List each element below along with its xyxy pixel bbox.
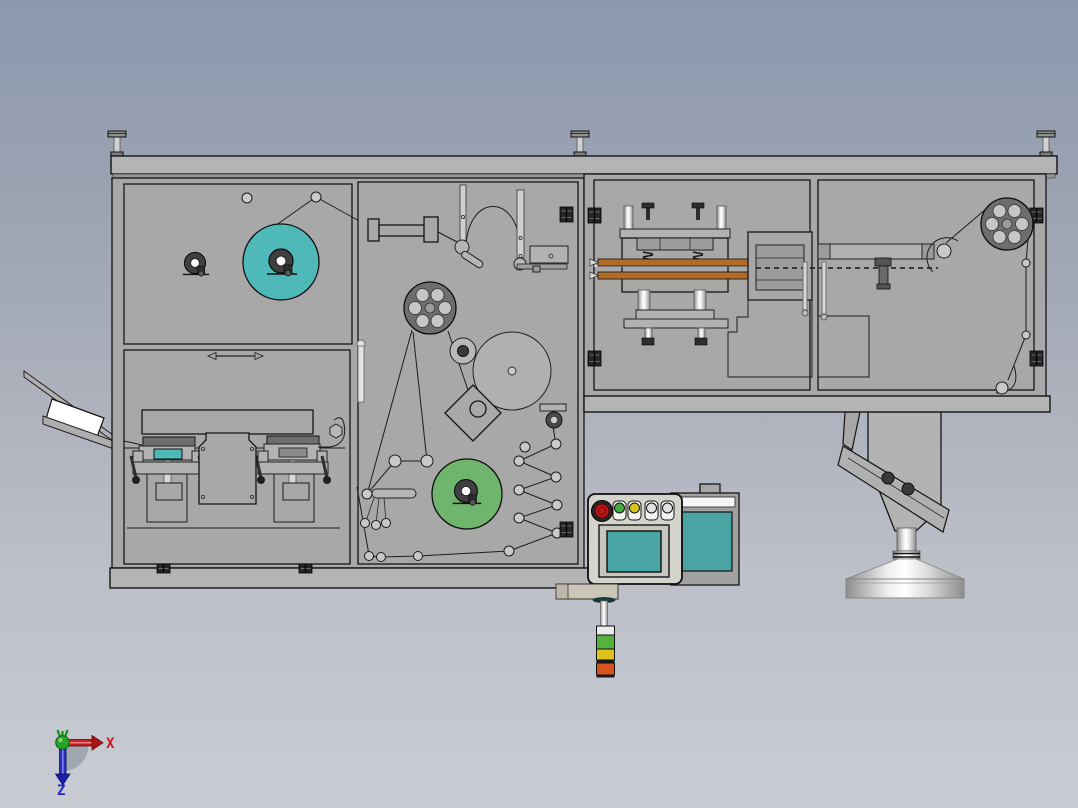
door-hinge — [1030, 351, 1043, 366]
lifting-eyebolt-middle — [571, 131, 589, 156]
bracket-bolt-1 — [882, 472, 894, 484]
seal-lower-plate — [636, 310, 714, 319]
seal-guard-box — [748, 232, 812, 300]
leg-arm — [843, 412, 860, 450]
forming-station-panel — [124, 350, 350, 564]
web-guide-roller — [1022, 331, 1030, 339]
cad-viewport[interactable]: X Z — [0, 0, 1078, 808]
sensor-shelf — [530, 246, 568, 263]
foot-cone — [846, 559, 964, 579]
green-button[interactable] — [615, 503, 625, 513]
emergency-stop-button[interactable] — [592, 501, 613, 522]
film-unwind-panel — [124, 184, 370, 344]
white-button-2[interactable] — [663, 503, 673, 513]
tower-light-green — [597, 635, 615, 649]
web-guide-roller — [996, 382, 1008, 394]
station-insert — [154, 449, 182, 459]
foot-pad — [846, 579, 964, 598]
top-rail — [111, 156, 1057, 174]
machine-frame — [108, 131, 1057, 178]
tower-light-cap — [597, 626, 615, 635]
web-guide-roller — [311, 192, 321, 202]
tension-hex-nut — [330, 424, 342, 438]
back-screen[interactable] — [681, 512, 732, 571]
foot-stem — [897, 528, 916, 551]
outfeed-guide-roller — [937, 244, 951, 258]
axis-z-label: Z — [57, 783, 65, 799]
axis-x-label: X — [106, 736, 115, 752]
exit-chute — [24, 371, 114, 449]
station-bracket — [133, 462, 203, 474]
section-bottom-rail — [584, 396, 1050, 412]
outfeed-bracket — [875, 258, 891, 266]
door-hinge — [560, 522, 573, 537]
clamp-knob — [257, 476, 265, 484]
bottom-rail — [110, 568, 590, 588]
panel-mount-bracket — [556, 584, 618, 603]
station-bracket — [258, 462, 328, 474]
hmi-screen[interactable] — [607, 531, 661, 572]
web-guide-roller — [1022, 259, 1030, 267]
white-button-1[interactable] — [647, 503, 657, 513]
triad-origin-ball — [56, 736, 70, 750]
tower-light-pole — [601, 601, 608, 626]
lifting-eyebolt-right — [1037, 131, 1055, 156]
machine-leg-assembly — [838, 412, 964, 598]
index-wheel-forming — [404, 282, 456, 334]
machine-drawing: X Z — [0, 0, 1078, 808]
web-guide-roller — [242, 193, 252, 203]
foot-rings — [893, 551, 920, 559]
heater-bar-upper — [598, 259, 750, 266]
lifting-eyebolt-left — [108, 131, 126, 156]
station-top-beam — [142, 410, 313, 434]
yellow-button[interactable] — [630, 503, 640, 513]
dancer-rod — [460, 185, 466, 243]
tower-light — [597, 626, 615, 678]
door-hinge — [560, 207, 573, 222]
orientation-triad: X Z — [56, 730, 116, 799]
bracket-bolt-2 — [902, 483, 914, 495]
tower-light-red — [597, 663, 615, 675]
clamp-knob — [132, 476, 140, 484]
tower-light-yellow — [597, 649, 615, 660]
clamp-knob — [323, 476, 331, 484]
door-hinge — [588, 208, 601, 223]
web-transport-panel — [357, 182, 578, 564]
center-guard-plate — [199, 433, 256, 504]
hmi-front-panel — [588, 494, 682, 584]
seal-top-plate — [620, 229, 730, 238]
door-hinge — [588, 351, 601, 366]
dancer-rod — [517, 190, 524, 258]
heater-bar-lower — [598, 272, 750, 279]
index-wheel-rewind — [981, 198, 1033, 250]
station-plate — [143, 437, 195, 446]
sealing-section — [584, 174, 1050, 412]
